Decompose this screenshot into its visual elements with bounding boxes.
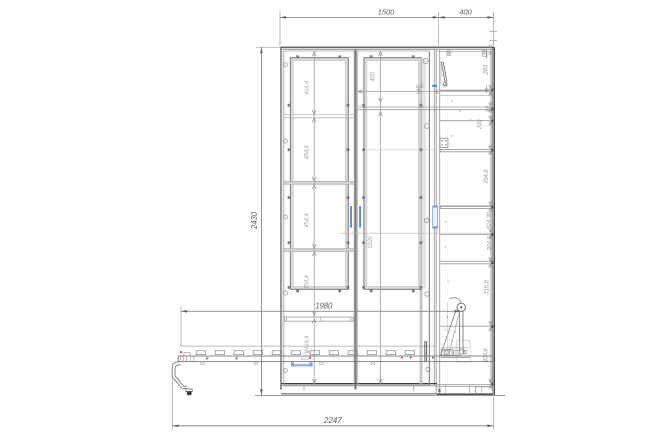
- svg-text:2430: 2430: [250, 211, 259, 230]
- svg-text:400: 400: [370, 71, 376, 81]
- svg-text:1500: 1500: [378, 7, 395, 16]
- svg-text:283: 283: [483, 64, 489, 75]
- svg-text:2247: 2247: [323, 416, 342, 425]
- svg-text:454,4: 454,4: [305, 275, 311, 290]
- svg-text:1920: 1920: [368, 235, 374, 249]
- svg-text:310,8: 310,8: [484, 280, 490, 295]
- svg-text:18: 18: [486, 105, 492, 112]
- svg-text:454,4: 454,4: [305, 145, 311, 160]
- svg-text:304,8: 304,8: [484, 348, 490, 363]
- svg-text:454,4: 454,4: [305, 213, 311, 228]
- svg-text:1980: 1980: [315, 302, 333, 311]
- svg-text:304,8: 304,8: [487, 236, 493, 251]
- svg-text:200: 200: [477, 119, 483, 130]
- svg-text:454,4: 454,4: [305, 335, 311, 350]
- svg-text:454,4: 454,4: [305, 80, 311, 95]
- svg-text:400: 400: [459, 7, 472, 16]
- svg-text:324,30: 324,30: [487, 211, 493, 229]
- svg-text:394,8: 394,8: [484, 169, 490, 184]
